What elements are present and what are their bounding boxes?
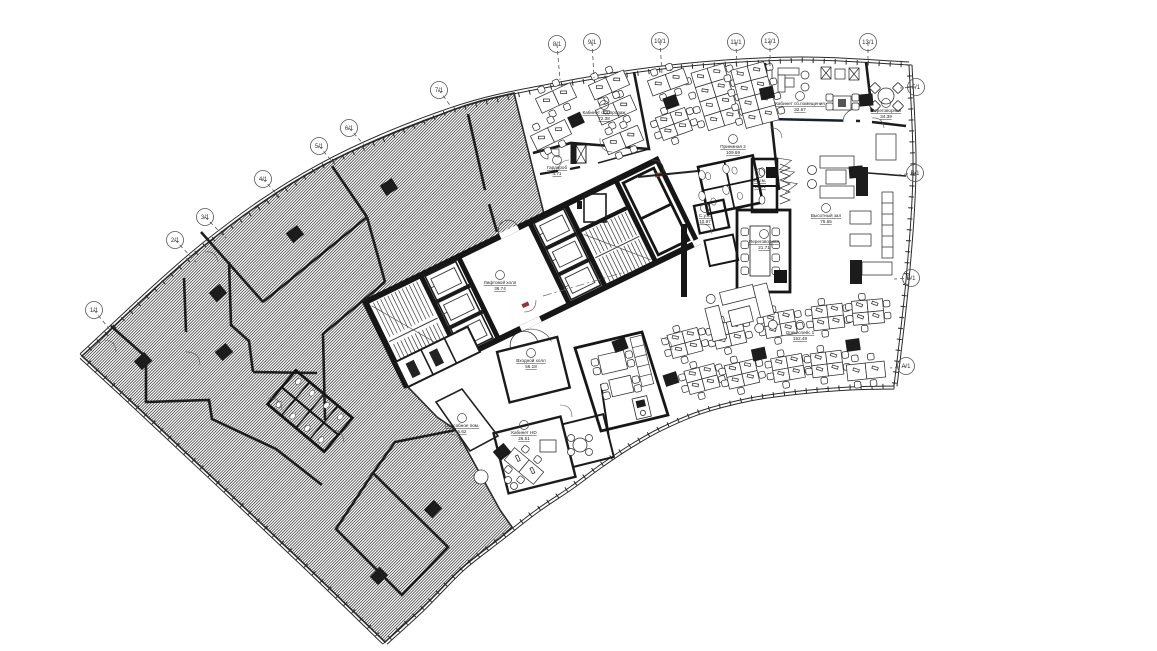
svg-text:10.97: 10.97 [699, 219, 711, 224]
svg-text:5/1: 5/1 [315, 144, 324, 150]
svg-text:Переговорная: Переговорная [871, 108, 902, 113]
svg-text:Высотный зал: Высотный зал [811, 212, 842, 218]
svg-text:9/1: 9/1 [588, 40, 597, 46]
svg-text:Г/1: Г/1 [912, 85, 921, 91]
svg-text:12/1: 12/1 [764, 39, 776, 45]
svg-text:36.74: 36.74 [494, 286, 506, 291]
svg-text:26.51: 26.51 [518, 436, 530, 441]
svg-text:3/1: 3/1 [201, 215, 210, 221]
svg-text:Входной холл: Входной холл [516, 357, 546, 363]
svg-text:Подсобное пом.: Подсобное пом. [445, 423, 479, 428]
svg-text:75.65: 75.65 [820, 219, 832, 224]
svg-text:Кабинет HD: Кабинет HD [511, 430, 537, 435]
svg-text:Опен спейс 1: Опен спейс 1 [786, 329, 815, 335]
svg-text:6/1: 6/1 [345, 126, 354, 132]
svg-text:Кабинет отд.продаж: Кабинет отд.продаж [583, 110, 627, 115]
svg-text:С.у.м.: С.у.м. [754, 178, 766, 183]
svg-text:А/1: А/1 [901, 364, 911, 370]
svg-text:10.91: 10.91 [754, 184, 766, 189]
svg-text:32.67: 32.67 [794, 107, 806, 112]
svg-text:Б/1: Б/1 [907, 276, 917, 282]
svg-text:34.39: 34.39 [880, 114, 892, 119]
svg-text:109.69: 109.69 [726, 150, 740, 155]
svg-text:4/1: 4/1 [259, 177, 268, 183]
svg-text:56.18: 56.18 [525, 364, 537, 369]
svg-text:2/1: 2/1 [171, 238, 180, 244]
svg-text:13/1: 13/1 [862, 40, 874, 46]
svg-text:11/1: 11/1 [730, 40, 742, 46]
svg-text:Лифтовой холл: Лифтовой холл [484, 279, 517, 285]
svg-text:С.у.ж.: С.у.ж. [699, 213, 711, 218]
svg-text:5.62: 5.62 [458, 429, 467, 434]
svg-text:В/1: В/1 [910, 171, 920, 177]
svg-text:Кабинет сб.помещения: Кабинет сб.помещения [775, 101, 825, 106]
svg-text:Приемная 2: Приемная 2 [720, 144, 746, 149]
svg-text:4.71: 4.71 [553, 171, 562, 176]
svg-text:10/1: 10/1 [654, 39, 666, 45]
svg-text:7/1: 7/1 [435, 88, 444, 94]
svg-text:72.38: 72.38 [598, 116, 610, 121]
svg-text:21.71: 21.71 [758, 245, 770, 250]
svg-text:152.48: 152.48 [793, 336, 807, 341]
svg-text:8/1: 8/1 [553, 42, 562, 48]
svg-text:1/1: 1/1 [90, 308, 99, 314]
svg-text:Гардероб: Гардероб [547, 165, 568, 170]
svg-text:Переговорная: Переговорная [749, 239, 780, 244]
